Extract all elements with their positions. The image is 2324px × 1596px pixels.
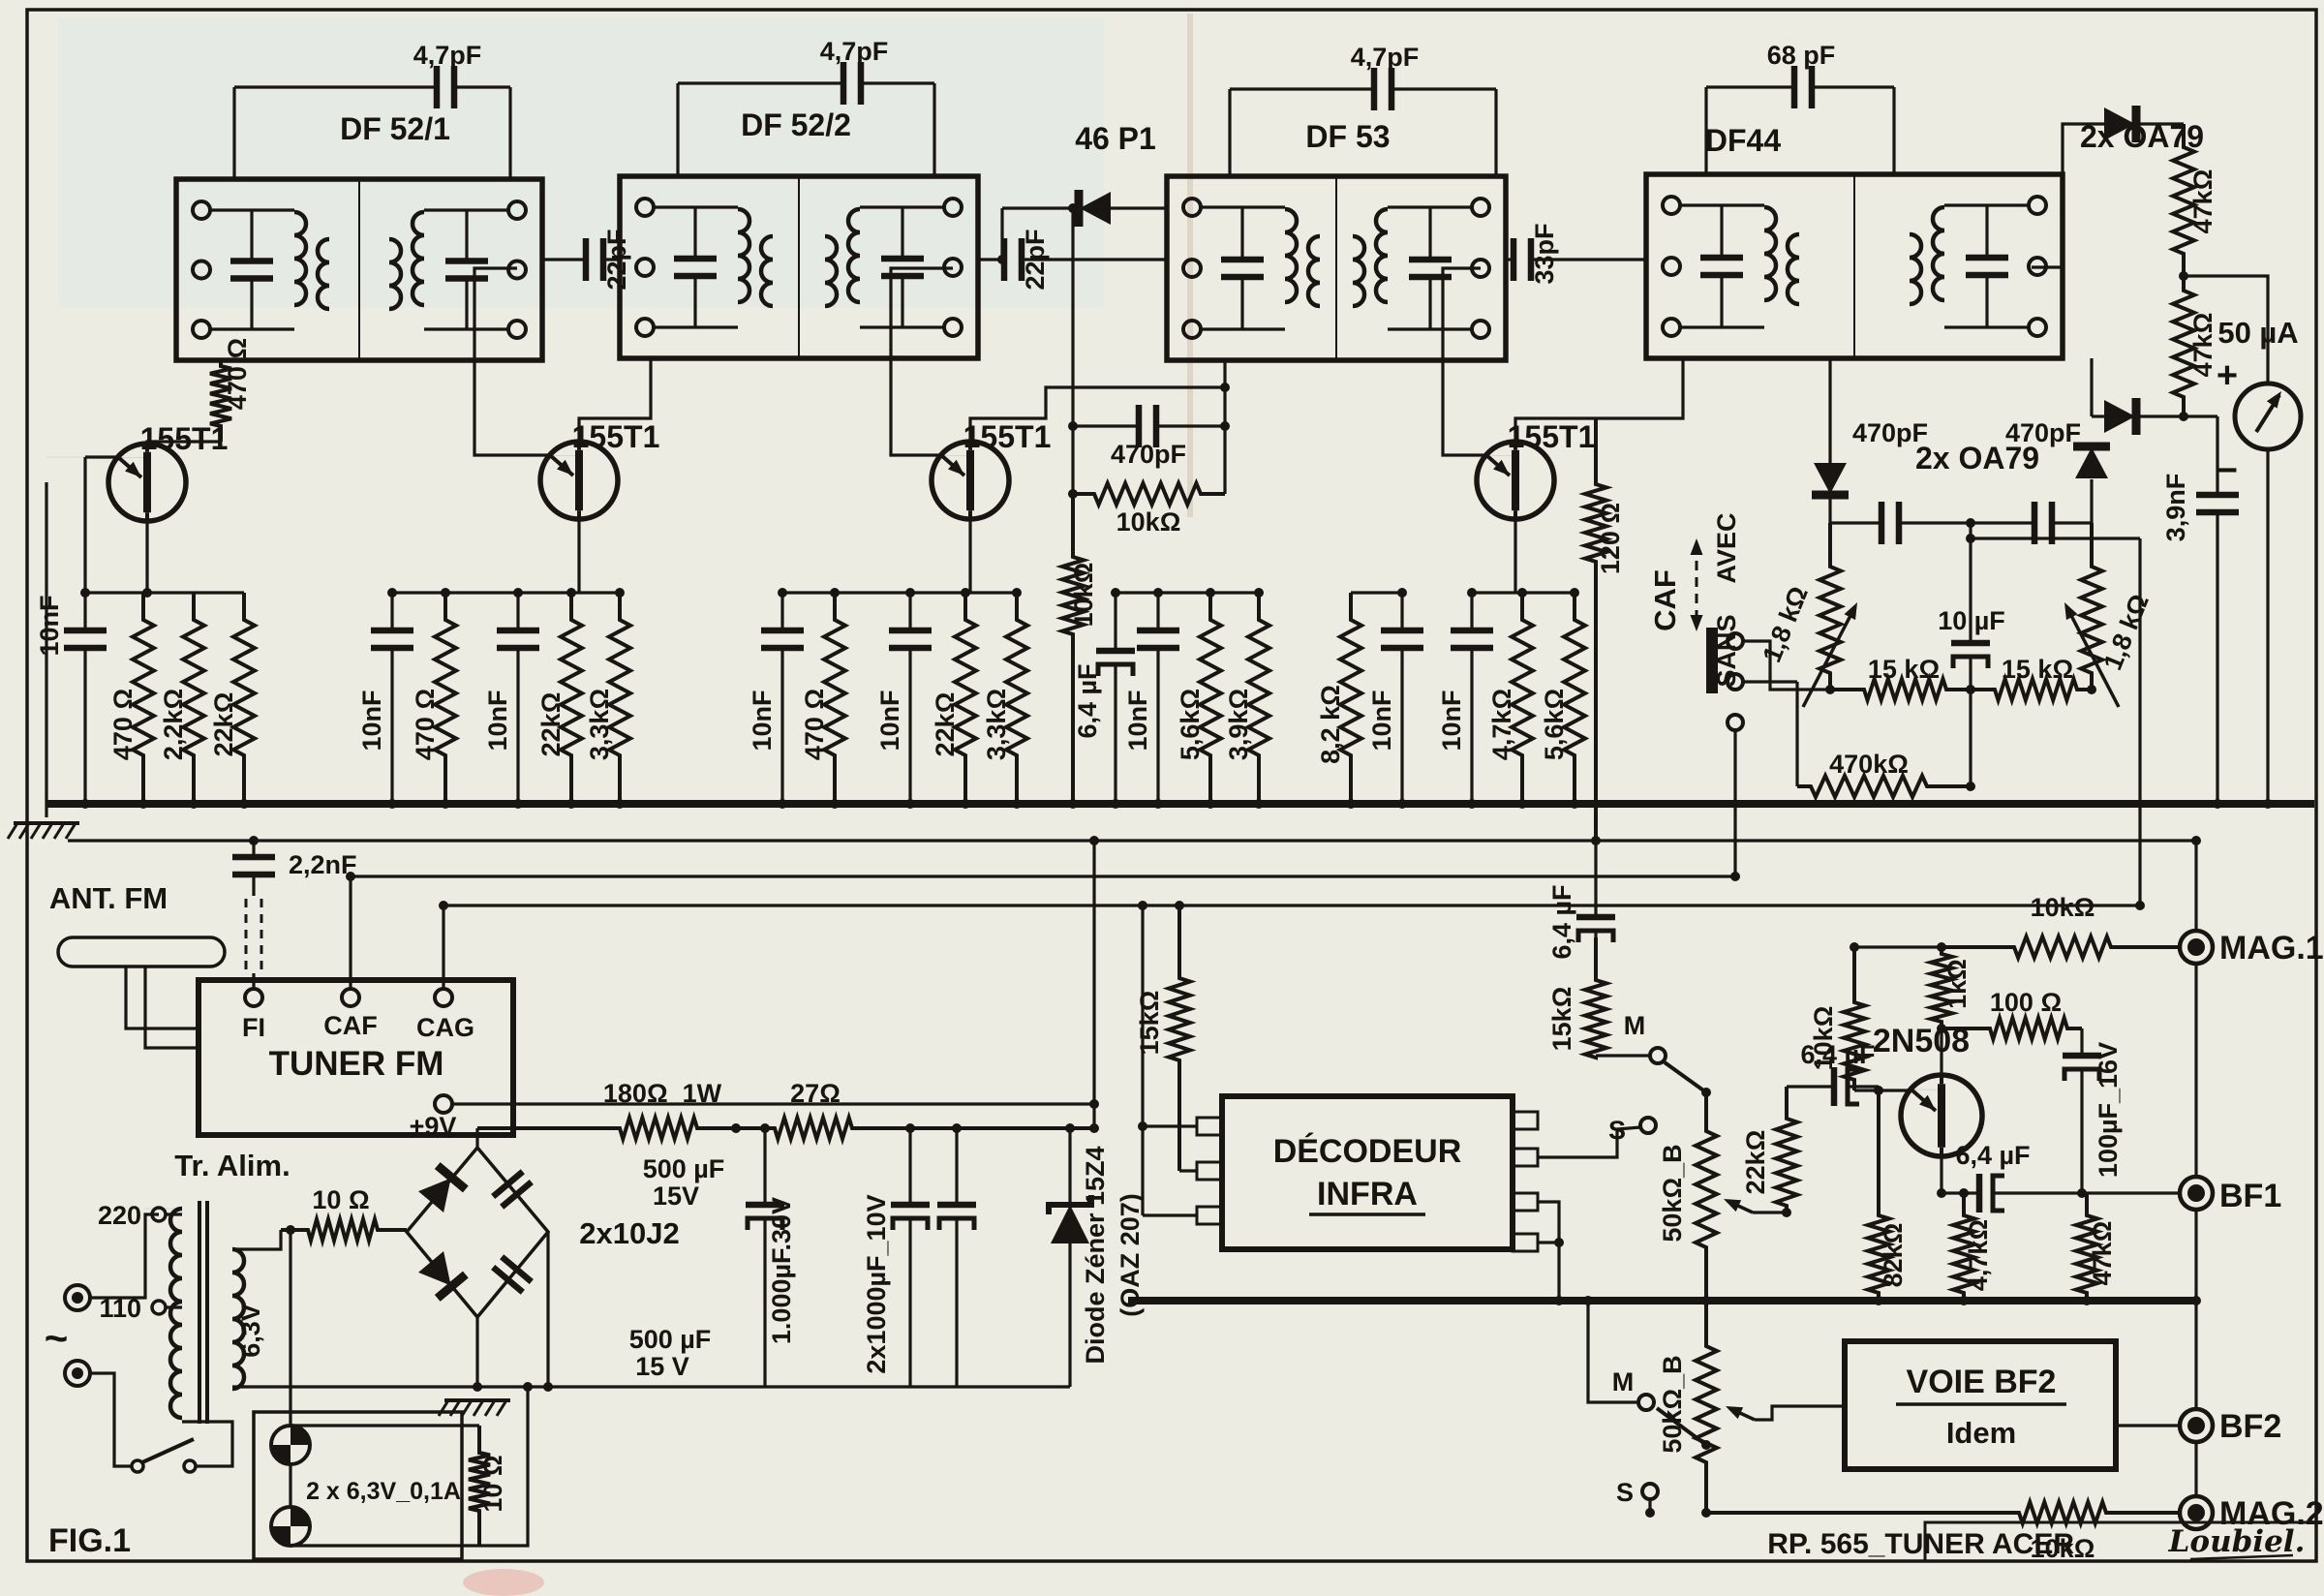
cap-3n9: 3,9nF bbox=[2161, 474, 2190, 542]
res-470-2: 470 Ω bbox=[411, 689, 440, 760]
res-3k3-2: 3,3kΩ bbox=[982, 689, 1011, 760]
cap-10uf: 10 µF bbox=[1938, 606, 2005, 635]
cap-10nf-4: 10nF bbox=[748, 690, 777, 751]
cap-4p7-1: 4,7pF bbox=[413, 41, 482, 70]
res-10k-1: 10kΩ bbox=[1116, 507, 1181, 537]
res-100ohm: 100 Ω bbox=[1990, 988, 2062, 1017]
cap-68pf: 68 pF bbox=[1767, 41, 1836, 70]
diode-46p1-label: 46 P1 bbox=[1075, 121, 1156, 156]
terminal-pin bbox=[2187, 1504, 2205, 1521]
res-47k-1: 47kΩ bbox=[2188, 169, 2217, 234]
switch1-m: M bbox=[1624, 1011, 1646, 1040]
res-4k7-2: 4,7kΩ bbox=[1964, 1219, 1993, 1291]
fig-label: FIG.1 bbox=[48, 1522, 131, 1559]
junction-dot bbox=[1089, 1123, 1099, 1133]
junction-dot bbox=[1591, 836, 1601, 845]
meter-plus: + bbox=[2217, 355, 2238, 396]
antenna-label: ANT. FM bbox=[49, 881, 168, 915]
junction-dot bbox=[80, 588, 90, 598]
junction-dot bbox=[2191, 836, 2201, 845]
block-df44-title: DF44 bbox=[1705, 123, 1781, 158]
res-22k-dec: 22kΩ bbox=[1741, 1130, 1770, 1195]
junction-dot bbox=[731, 1123, 741, 1133]
cap-6uf4-2: 6,4 µF bbox=[1547, 884, 1576, 959]
junction-dot bbox=[439, 901, 448, 910]
res-10k-mag1: 10kΩ bbox=[2031, 893, 2095, 922]
junction-dot bbox=[997, 255, 1007, 264]
cap-470pf-1: 470pF bbox=[1111, 440, 1186, 469]
decoder-title-2: INFRA bbox=[1317, 1176, 1418, 1212]
cap-10nf-7: 10nF bbox=[1367, 690, 1396, 751]
junction-dot bbox=[615, 588, 625, 598]
paper-stain bbox=[463, 1569, 544, 1596]
cap-10nf-8: 10nF bbox=[1437, 690, 1466, 751]
res-15k-dec-1: 15kΩ bbox=[1135, 991, 1164, 1056]
junction-dot bbox=[1012, 588, 1022, 598]
junction-dot bbox=[1959, 1188, 1969, 1198]
block-df52-2-title: DF 52/2 bbox=[741, 107, 851, 142]
paper-crease bbox=[1187, 14, 1193, 517]
zener-label-1: Diode Zéner 15Z4 bbox=[1081, 1146, 1110, 1364]
voie-idem: Idem bbox=[1946, 1416, 2016, 1450]
junction-dot bbox=[1583, 1296, 1593, 1305]
junction-dot bbox=[387, 588, 397, 598]
term-mag1-label: MAG.1 bbox=[2219, 930, 2324, 967]
junction-dot bbox=[523, 1382, 533, 1392]
junction-dot bbox=[2191, 1296, 2201, 1305]
bridge-label: 2x10J2 bbox=[579, 1216, 679, 1250]
res-47k-3: 47kΩ bbox=[2088, 1221, 2117, 1286]
caf-sans: SANS bbox=[1712, 614, 1741, 687]
cap-10nf-6: 10nF bbox=[1123, 690, 1152, 751]
junction-dot bbox=[1111, 588, 1120, 598]
caf-label: CAF bbox=[1648, 569, 1682, 631]
res-15k-dec-2: 15kΩ bbox=[1547, 987, 1576, 1052]
cap-500uf-1a: 500 µF bbox=[643, 1154, 725, 1183]
block-df53-title: DF 53 bbox=[1305, 119, 1390, 154]
res-82k: 82kΩ bbox=[1879, 1223, 1908, 1288]
mains-pin bbox=[72, 1367, 83, 1379]
junction-dot bbox=[441, 588, 450, 598]
junction-dot bbox=[1254, 588, 1264, 598]
transistor-base-bar bbox=[1512, 450, 1519, 510]
res-15k-det-2: 15 kΩ bbox=[2002, 655, 2073, 684]
res-5k6-1: 5,6kΩ bbox=[1176, 689, 1205, 760]
sec-6v3: 6,3V bbox=[236, 1304, 265, 1358]
junction-dot bbox=[1206, 588, 1215, 598]
cap-6uf4-3: 6,4 µF bbox=[1800, 1040, 1875, 1069]
cap-10nf-5: 10nF bbox=[875, 690, 904, 751]
junction-dot bbox=[1175, 901, 1184, 910]
cap-10nf-2: 10nF bbox=[357, 690, 386, 751]
pin-caf: CAF bbox=[323, 1011, 378, 1040]
res-470-c1: 470 Ω bbox=[223, 338, 252, 410]
junction-dot bbox=[1220, 421, 1230, 431]
junction-dot bbox=[2135, 901, 2145, 910]
res-470k: 470kΩ bbox=[1829, 750, 1909, 779]
junction-dot bbox=[1554, 1238, 1564, 1247]
cap-2x1000uf: 2x1000µF_10V bbox=[862, 1194, 891, 1373]
cap-500uf-1b: 15V bbox=[653, 1182, 699, 1211]
tuner-title: TUNER FM bbox=[269, 1045, 444, 1083]
junction-dot bbox=[2263, 799, 2273, 809]
pin-cag: CAG bbox=[416, 1013, 474, 1042]
terminal-pin bbox=[2187, 1184, 2205, 1202]
switch2-m: M bbox=[1612, 1367, 1635, 1396]
res-22k-3: 22kΩ bbox=[931, 692, 960, 757]
res-27ohm: 27Ω bbox=[790, 1079, 841, 1108]
junction-dot bbox=[1517, 588, 1527, 598]
pin-9v: +9V bbox=[410, 1112, 457, 1141]
res-22k-2: 22kΩ bbox=[536, 692, 566, 757]
junction-dot bbox=[1782, 1208, 1791, 1217]
switch2-s: S bbox=[1616, 1478, 1634, 1507]
res-10ohm-1: 10 Ω bbox=[312, 1185, 369, 1214]
res-470-1: 470 Ω bbox=[108, 689, 138, 760]
junction-dot bbox=[1153, 588, 1163, 598]
res-1k: 1kΩ bbox=[1942, 959, 1972, 1009]
transistor-155t1-2: 155T1 bbox=[572, 419, 660, 454]
res-470-3: 470 Ω bbox=[800, 689, 829, 760]
tap-220: 220 bbox=[98, 1201, 141, 1230]
res-180ohm: 180Ω_1W bbox=[603, 1079, 722, 1108]
res-5k6-2: 5,6kΩ bbox=[1540, 689, 1569, 760]
tr-alim-label: Tr. Alim. bbox=[174, 1149, 290, 1182]
junction-dot bbox=[961, 588, 970, 598]
meter-minus: − bbox=[2217, 450, 2238, 491]
junction-dot bbox=[1570, 588, 1579, 598]
transistor-base-bar bbox=[143, 452, 151, 512]
res-120: 120 Ω bbox=[1596, 503, 1625, 574]
caf-avec: AVEC bbox=[1712, 512, 1741, 583]
res-10ohm-2: 10 Ω bbox=[478, 1455, 507, 1512]
transistor-155t1-3: 155T1 bbox=[963, 419, 1052, 454]
cap-6uf4-4: 6,4 µF bbox=[1955, 1141, 2030, 1170]
junction-dot bbox=[566, 588, 576, 598]
junction-dot bbox=[1467, 588, 1477, 598]
junction-dot bbox=[778, 588, 787, 598]
zener-label-2: (OAZ 207) bbox=[1116, 1193, 1145, 1317]
res-8k2: 8,2 kΩ bbox=[1316, 685, 1345, 764]
lamps-label: 2 x 6,3V_0,1A bbox=[306, 1478, 461, 1505]
cap-4p7-2: 4,7pF bbox=[820, 37, 889, 66]
tap-110: 110 bbox=[99, 1294, 141, 1323]
signature: Loubiel. bbox=[2168, 1524, 2306, 1559]
transistor-2n508: 2N508 bbox=[1873, 1023, 1970, 1059]
cap-22pf-1: 22pF bbox=[602, 229, 631, 290]
cap-33pf: 33pF bbox=[1530, 223, 1559, 284]
voie-title: VOIE BF2 bbox=[1907, 1364, 2057, 1400]
cap-1000uf: 1.000µF.30V bbox=[767, 1197, 796, 1344]
transistor-155t1-4: 155T1 bbox=[1508, 419, 1596, 454]
junction-dot bbox=[1701, 1440, 1711, 1450]
junction-dot bbox=[1730, 872, 1740, 881]
res-2k2: 2,2kΩ bbox=[159, 689, 188, 760]
diodes-2xoa79-top: 2x OA79 bbox=[2080, 119, 2204, 154]
transistor-base-bar bbox=[1938, 1084, 1945, 1148]
schematic-page: 4,7pFDF 52/14,7pFDF 52/246 P14,7pFDF 536… bbox=[0, 0, 2324, 1596]
switch1-s: S bbox=[1608, 1116, 1626, 1145]
pot-50k-1: 50kΩ_B bbox=[1658, 1144, 1687, 1242]
res-10k-agc: 10kΩ bbox=[1069, 563, 1098, 628]
pot-50k-2: 50kΩ_B bbox=[1658, 1355, 1687, 1453]
junction-dot bbox=[905, 588, 915, 598]
cap-10nf-3: 10nF bbox=[483, 690, 512, 751]
cap-10nf-1: 10nF bbox=[35, 595, 64, 656]
junction-dot bbox=[2087, 685, 2096, 694]
res-15k-det-1: 15 kΩ bbox=[1868, 655, 1940, 684]
cap-470pf-2: 470pF bbox=[1852, 418, 1928, 447]
cap-500uf-2a: 500 µF bbox=[629, 1325, 712, 1354]
cap-2n2: 2,2nF bbox=[289, 850, 357, 879]
meter-50ua: 50 µA bbox=[2217, 316, 2298, 350]
schematic-canvas: 4,7pFDF 52/14,7pFDF 52/246 P14,7pFDF 536… bbox=[0, 0, 2324, 1596]
mains-pin bbox=[72, 1292, 83, 1304]
res-3k9: 3,9kΩ bbox=[1224, 689, 1253, 760]
block-df52-1-title: DF 52/1 bbox=[340, 111, 450, 146]
junction-dot bbox=[513, 588, 523, 598]
res-4k7-1: 4,7kΩ bbox=[1487, 689, 1516, 760]
res-22k-1: 22kΩ bbox=[209, 692, 238, 757]
pin-fi: FI bbox=[242, 1013, 265, 1042]
junction-dot bbox=[830, 588, 840, 598]
cap-4p7-3: 4,7pF bbox=[1351, 43, 1420, 72]
junction-dot bbox=[1645, 1508, 1655, 1518]
cap-470pf-3: 470pF bbox=[2005, 418, 2081, 447]
mains-ac: ~ bbox=[45, 1315, 69, 1361]
cap-500uf-2b: 15 V bbox=[635, 1352, 689, 1381]
term-bf2-label: BF2 bbox=[2219, 1408, 2281, 1445]
cap-100uf: 100µF_16V bbox=[2094, 1042, 2123, 1178]
transistor-155t1-1: 155T1 bbox=[140, 421, 229, 456]
transistor-base-bar bbox=[966, 450, 974, 510]
res-47k-2: 47kΩ bbox=[2188, 313, 2217, 378]
terminal-pin bbox=[2187, 1417, 2205, 1434]
transistor-base-bar bbox=[575, 450, 583, 510]
junction-dot bbox=[2213, 799, 2222, 809]
terminal-pin bbox=[2187, 938, 2205, 956]
paper-tint bbox=[58, 17, 1104, 308]
junction-dot bbox=[142, 588, 152, 598]
term-bf1-label: BF1 bbox=[2219, 1178, 2281, 1214]
cap-6uf4-1: 6,4 µF bbox=[1073, 663, 1102, 738]
junction-dot bbox=[1138, 901, 1147, 910]
decoder-title-1: DÉCODEUR bbox=[1273, 1133, 1462, 1170]
junction-dot bbox=[1089, 836, 1099, 845]
ref-label: RP. 565_TUNER ACER bbox=[1767, 1528, 2074, 1560]
cap-22pf-2: 22pF bbox=[1021, 229, 1050, 290]
junction-dot bbox=[1397, 588, 1407, 598]
res-3k3-1: 3,3kΩ bbox=[585, 689, 614, 760]
